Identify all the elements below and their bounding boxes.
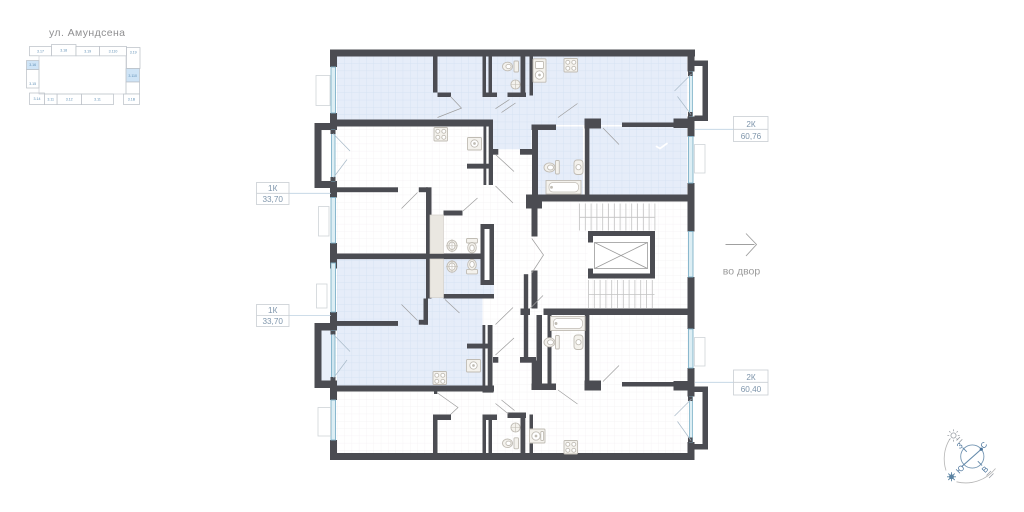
svg-text:3.19: 3.19	[84, 50, 91, 54]
svg-text:1К: 1К	[268, 184, 278, 193]
svg-text:во двор: во двор	[723, 266, 761, 278]
svg-text:3.11: 3.11	[47, 98, 54, 102]
svg-text:3.1B: 3.1B	[128, 98, 136, 102]
svg-text:1К: 1К	[268, 306, 278, 315]
svg-text:ул. Амундсена: ул. Амундсена	[49, 27, 125, 39]
svg-text:2К: 2К	[746, 120, 756, 129]
svg-text:3.18: 3.18	[60, 49, 67, 53]
svg-text:3.19: 3.19	[130, 51, 137, 55]
svg-text:60,40: 60,40	[741, 385, 762, 394]
svg-text:3.11: 3.11	[94, 98, 101, 102]
svg-text:3.16: 3.16	[29, 63, 36, 67]
svg-text:3.15: 3.15	[29, 82, 36, 86]
svg-text:3.110: 3.110	[128, 74, 137, 78]
svg-text:3.110: 3.110	[109, 50, 118, 54]
svg-text:33,70: 33,70	[262, 317, 283, 326]
svg-text:3.14: 3.14	[34, 97, 41, 101]
svg-text:60,76: 60,76	[741, 132, 762, 141]
svg-text:2К: 2К	[746, 373, 756, 382]
svg-text:33,70: 33,70	[262, 195, 283, 204]
svg-text:3.17: 3.17	[37, 50, 44, 54]
svg-text:3.12: 3.12	[66, 98, 73, 102]
